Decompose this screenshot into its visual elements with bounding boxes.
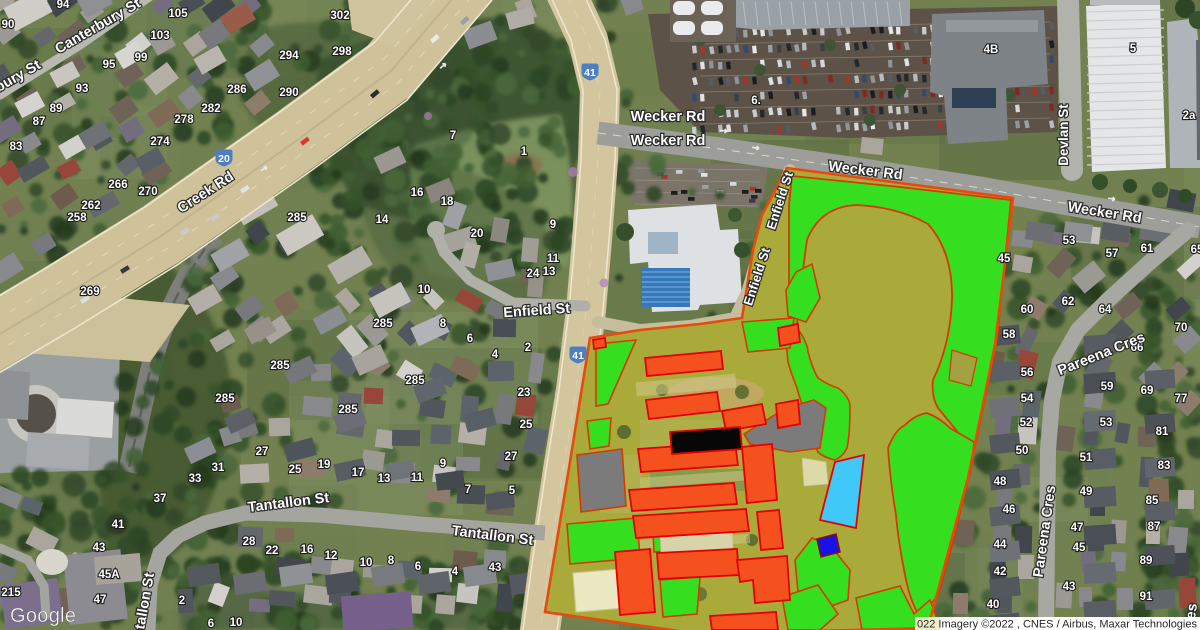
svg-text:215: 215 bbox=[1, 587, 21, 599]
svg-text:60: 60 bbox=[1021, 304, 1034, 316]
svg-text:85: 85 bbox=[1146, 495, 1159, 507]
svg-text:99: 99 bbox=[135, 52, 148, 64]
svg-text:53: 53 bbox=[1100, 417, 1113, 429]
svg-text:10: 10 bbox=[418, 284, 431, 296]
svg-text:12: 12 bbox=[325, 550, 338, 562]
svg-text:46: 46 bbox=[1003, 504, 1016, 516]
svg-text:49: 49 bbox=[1080, 486, 1093, 498]
svg-text:83: 83 bbox=[10, 141, 23, 153]
svg-text:302: 302 bbox=[330, 10, 349, 22]
svg-text:57: 57 bbox=[1106, 248, 1119, 260]
svg-text:258: 258 bbox=[67, 212, 87, 224]
svg-text:22: 22 bbox=[266, 545, 279, 557]
svg-text:45: 45 bbox=[998, 253, 1011, 265]
svg-text:2: 2 bbox=[525, 342, 531, 354]
svg-text:31: 31 bbox=[212, 462, 225, 474]
svg-text:94: 94 bbox=[57, 0, 70, 11]
svg-text:11: 11 bbox=[411, 472, 424, 484]
svg-text:56: 56 bbox=[1021, 367, 1034, 379]
svg-text:16: 16 bbox=[411, 187, 424, 199]
svg-text:65: 65 bbox=[1191, 244, 1200, 256]
svg-text:42: 42 bbox=[994, 566, 1007, 578]
svg-text:1: 1 bbox=[521, 146, 528, 158]
svg-text:13: 13 bbox=[543, 266, 556, 278]
svg-text:285: 285 bbox=[287, 212, 307, 224]
svg-text:7: 7 bbox=[465, 484, 471, 496]
svg-text:8: 8 bbox=[440, 318, 447, 330]
svg-text:48: 48 bbox=[994, 476, 1007, 488]
svg-text:18: 18 bbox=[441, 196, 454, 208]
svg-text:4: 4 bbox=[492, 349, 499, 361]
svg-text:52: 52 bbox=[1020, 417, 1033, 429]
svg-text:43: 43 bbox=[1063, 581, 1076, 593]
svg-text:9: 9 bbox=[440, 458, 446, 470]
svg-text:13: 13 bbox=[378, 473, 391, 485]
svg-text:24: 24 bbox=[527, 268, 540, 280]
svg-text:62: 62 bbox=[1062, 296, 1075, 308]
svg-text:266: 266 bbox=[108, 179, 127, 191]
svg-text:274: 274 bbox=[150, 136, 170, 148]
svg-text:81: 81 bbox=[1156, 426, 1169, 438]
svg-text:23: 23 bbox=[518, 387, 531, 399]
svg-text:14: 14 bbox=[376, 214, 389, 226]
svg-text:41: 41 bbox=[112, 519, 125, 531]
svg-text:28: 28 bbox=[243, 536, 256, 548]
svg-text:103: 103 bbox=[150, 30, 169, 42]
svg-text:5: 5 bbox=[1130, 43, 1137, 55]
svg-text:87: 87 bbox=[1148, 521, 1161, 533]
svg-text:54: 54 bbox=[1021, 393, 1034, 405]
svg-text:89: 89 bbox=[50, 103, 63, 115]
svg-text:43: 43 bbox=[93, 542, 106, 554]
svg-text:Google: Google bbox=[10, 605, 76, 627]
svg-text:59: 59 bbox=[1101, 381, 1114, 393]
svg-text:11: 11 bbox=[547, 253, 560, 265]
svg-text:Wecker Rd: Wecker Rd bbox=[631, 109, 706, 125]
svg-text:Wecker Rd: Wecker Rd bbox=[631, 133, 706, 149]
svg-text:51: 51 bbox=[1080, 452, 1093, 464]
svg-text:278: 278 bbox=[174, 114, 194, 126]
svg-text:25: 25 bbox=[289, 464, 302, 476]
svg-text:16: 16 bbox=[301, 544, 314, 556]
svg-text:285: 285 bbox=[405, 375, 425, 387]
svg-text:285: 285 bbox=[338, 404, 358, 416]
svg-text:6.: 6. bbox=[751, 95, 761, 107]
svg-text:285: 285 bbox=[270, 360, 290, 372]
svg-text:105: 105 bbox=[168, 8, 188, 20]
svg-text:290: 290 bbox=[279, 87, 298, 99]
svg-text:41: 41 bbox=[572, 350, 584, 362]
svg-text:43: 43 bbox=[489, 562, 502, 574]
svg-text:41: 41 bbox=[584, 67, 596, 79]
svg-text:44: 44 bbox=[994, 539, 1007, 551]
svg-text:285: 285 bbox=[373, 318, 393, 330]
svg-text:45: 45 bbox=[1073, 542, 1086, 554]
svg-text:83: 83 bbox=[1158, 460, 1171, 472]
svg-text:89: 89 bbox=[1140, 555, 1153, 567]
svg-text:19: 19 bbox=[318, 459, 331, 471]
svg-text:17: 17 bbox=[352, 467, 365, 479]
svg-text:6: 6 bbox=[208, 618, 214, 630]
svg-text:37: 37 bbox=[154, 493, 167, 505]
svg-text:262: 262 bbox=[81, 200, 100, 212]
svg-text:269: 269 bbox=[80, 286, 99, 298]
svg-text:47: 47 bbox=[1071, 522, 1084, 534]
svg-text:90: 90 bbox=[2, 19, 15, 31]
svg-text:285: 285 bbox=[215, 393, 235, 405]
svg-text:2: 2 bbox=[179, 595, 185, 607]
svg-text:Devlan St: Devlan St bbox=[1056, 104, 1071, 166]
svg-text:58: 58 bbox=[1003, 329, 1016, 341]
svg-text:25: 25 bbox=[520, 419, 533, 431]
svg-text:70: 70 bbox=[1175, 322, 1188, 334]
svg-text:4: 4 bbox=[452, 566, 459, 578]
svg-text:20: 20 bbox=[471, 228, 484, 240]
svg-text:6: 6 bbox=[467, 333, 473, 345]
svg-text:10: 10 bbox=[230, 617, 243, 629]
svg-text:270: 270 bbox=[138, 186, 157, 198]
svg-text:91: 91 bbox=[1140, 591, 1153, 603]
svg-text:20: 20 bbox=[218, 153, 230, 165]
svg-text:87: 87 bbox=[33, 116, 46, 128]
svg-text:33: 33 bbox=[189, 473, 202, 485]
svg-text:2a: 2a bbox=[1183, 110, 1196, 122]
svg-text:77: 77 bbox=[1175, 393, 1188, 405]
svg-text:5: 5 bbox=[509, 485, 516, 497]
svg-text:69: 69 bbox=[1141, 385, 1154, 397]
svg-text:286: 286 bbox=[227, 84, 246, 96]
svg-text:50: 50 bbox=[1016, 445, 1029, 457]
svg-text:61: 61 bbox=[1141, 243, 1154, 255]
svg-text:27: 27 bbox=[256, 446, 269, 458]
svg-text:022 Imagery ©2022 , CNES / Air: 022 Imagery ©2022 , CNES / Airbus, Maxar… bbox=[917, 619, 1197, 630]
svg-text:45A: 45A bbox=[98, 569, 119, 581]
svg-text:27: 27 bbox=[505, 451, 518, 463]
svg-text:8: 8 bbox=[388, 555, 395, 567]
svg-text:298: 298 bbox=[332, 46, 352, 58]
svg-text:9: 9 bbox=[550, 219, 556, 231]
svg-text:294: 294 bbox=[279, 50, 299, 62]
svg-text:10: 10 bbox=[360, 557, 373, 569]
svg-text:64: 64 bbox=[1099, 304, 1112, 316]
svg-text:4B: 4B bbox=[984, 44, 999, 56]
svg-text:282: 282 bbox=[201, 103, 220, 115]
svg-text:47: 47 bbox=[94, 594, 107, 606]
svg-text:40: 40 bbox=[987, 599, 1000, 611]
svg-text:6: 6 bbox=[415, 561, 421, 573]
svg-text:53: 53 bbox=[1063, 235, 1076, 247]
svg-text:7: 7 bbox=[450, 130, 456, 142]
svg-text:95: 95 bbox=[103, 59, 116, 71]
svg-text:93: 93 bbox=[76, 83, 89, 95]
